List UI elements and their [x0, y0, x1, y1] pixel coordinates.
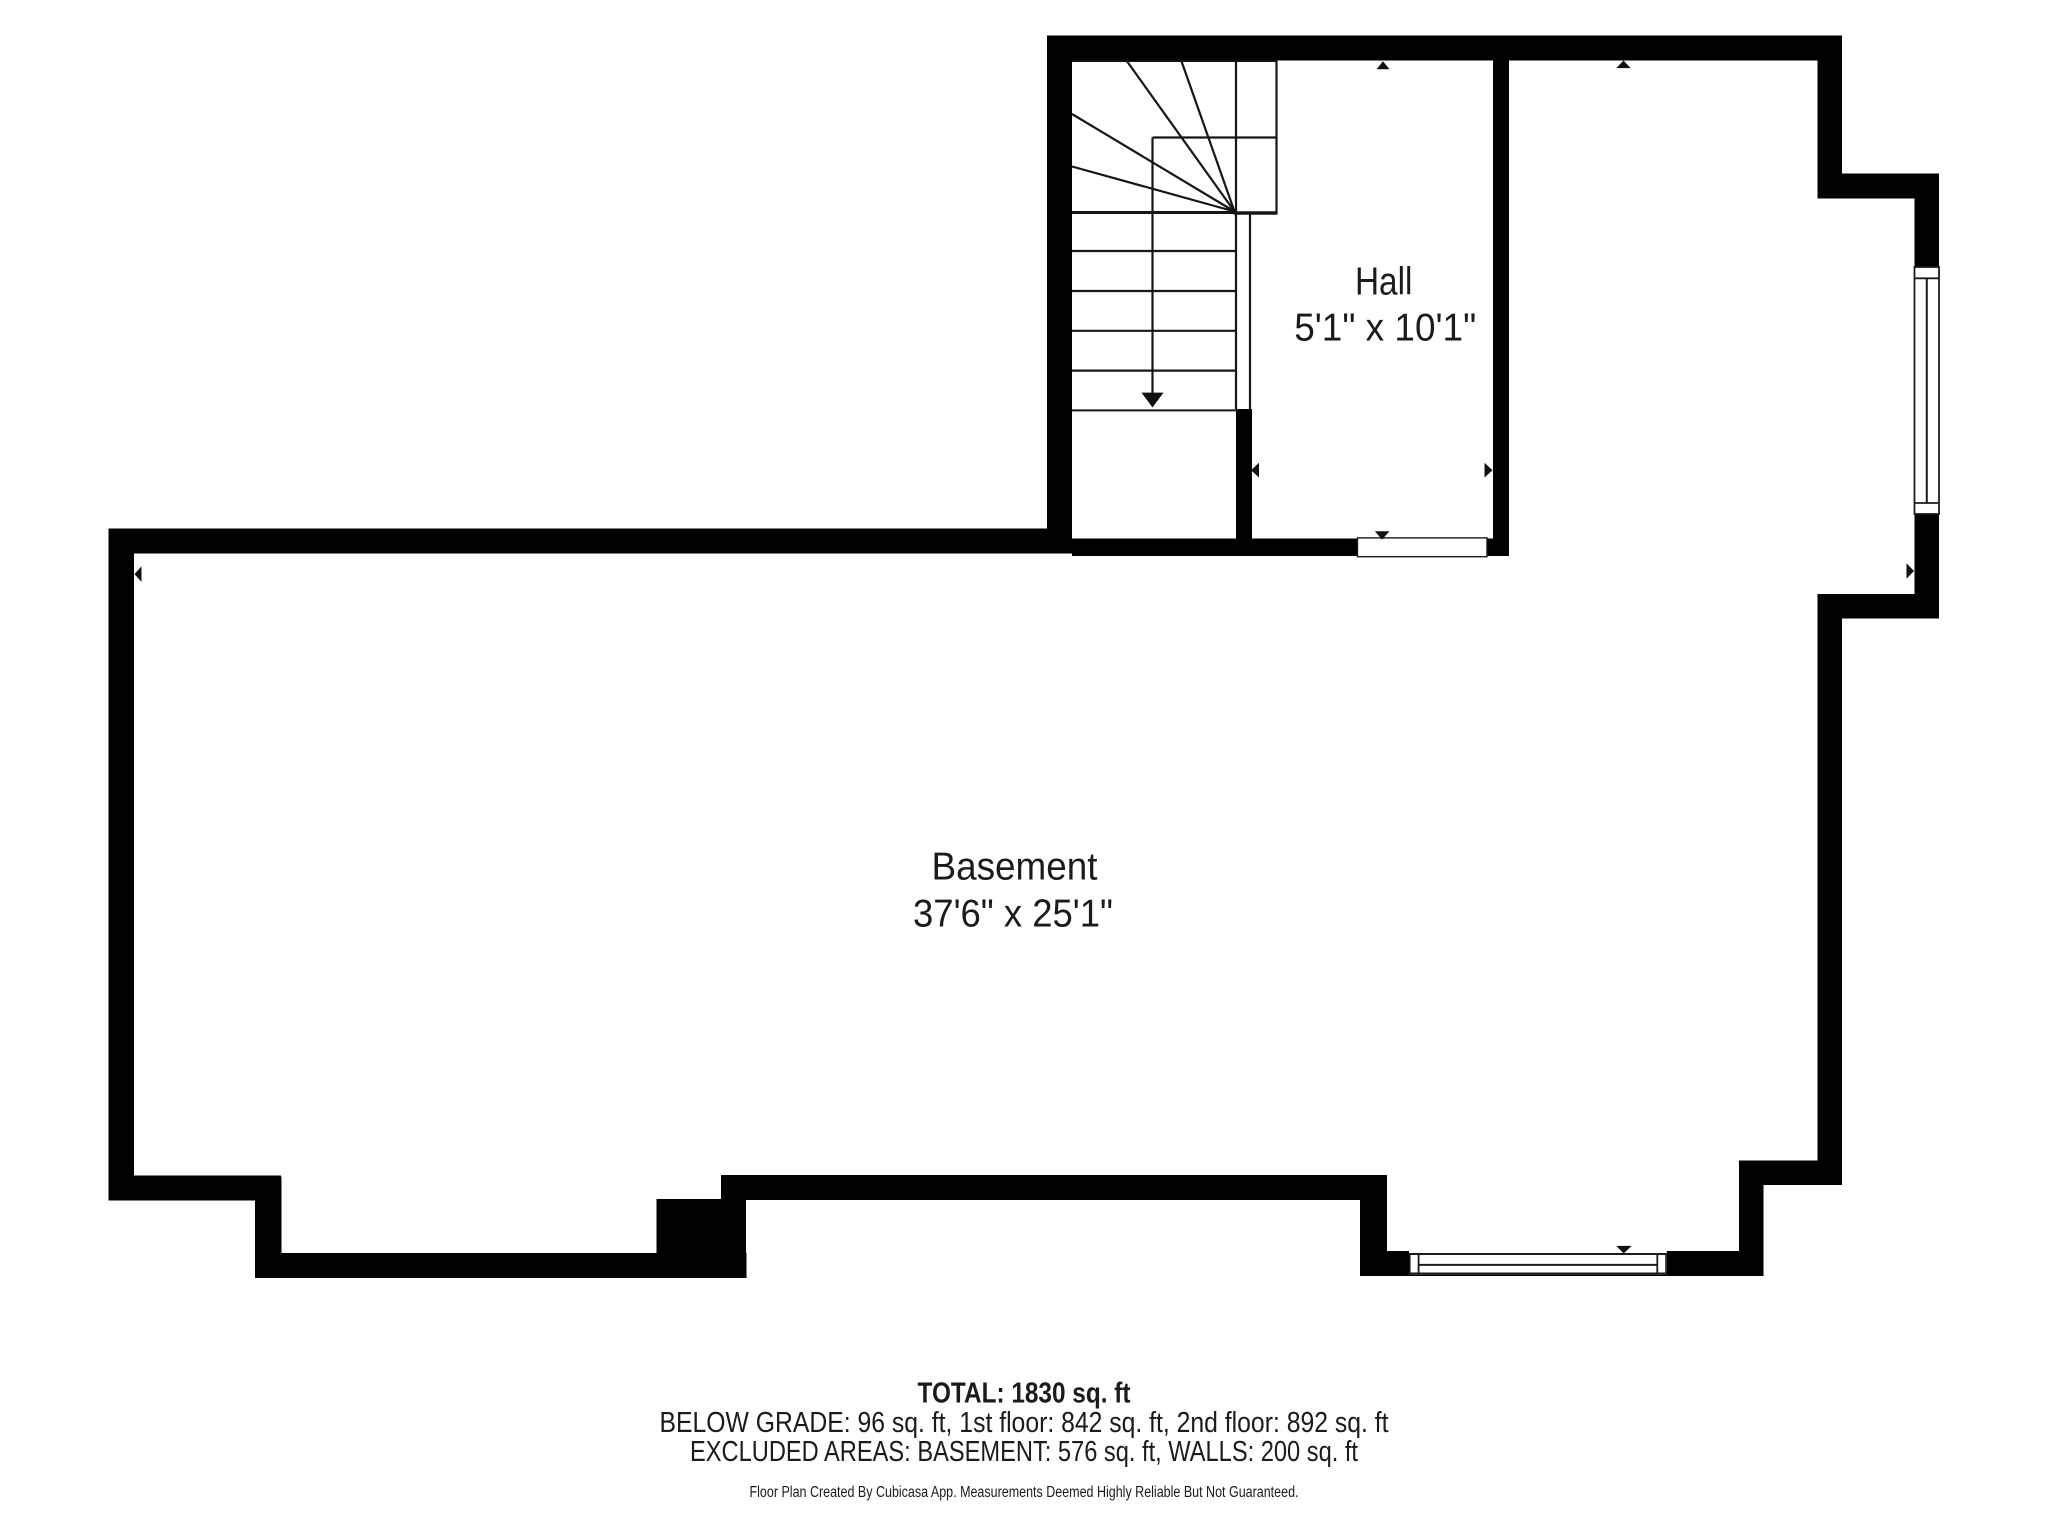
svg-text:Hall: Hall — [1355, 261, 1413, 304]
svg-text:BELOW GRADE: 96 sq. ft, 1st fl: BELOW GRADE: 96 sq. ft, 1st floor: 842 s… — [660, 1407, 1389, 1439]
svg-text:37'6" x 25'1": 37'6" x 25'1" — [913, 893, 1113, 936]
svg-text:Floor Plan Created By Cubicasa: Floor Plan Created By Cubicasa App. Meas… — [750, 1484, 1299, 1501]
svg-text:EXCLUDED AREAS: BASEMENT: 576: EXCLUDED AREAS: BASEMENT: 576 sq. ft, WA… — [690, 1436, 1358, 1468]
svg-text:Basement: Basement — [932, 846, 1098, 889]
svg-text:5'1" x 10'1": 5'1" x 10'1" — [1294, 307, 1476, 350]
svg-text:TOTAL: 1830 sq. ft: TOTAL: 1830 sq. ft — [918, 1378, 1131, 1410]
